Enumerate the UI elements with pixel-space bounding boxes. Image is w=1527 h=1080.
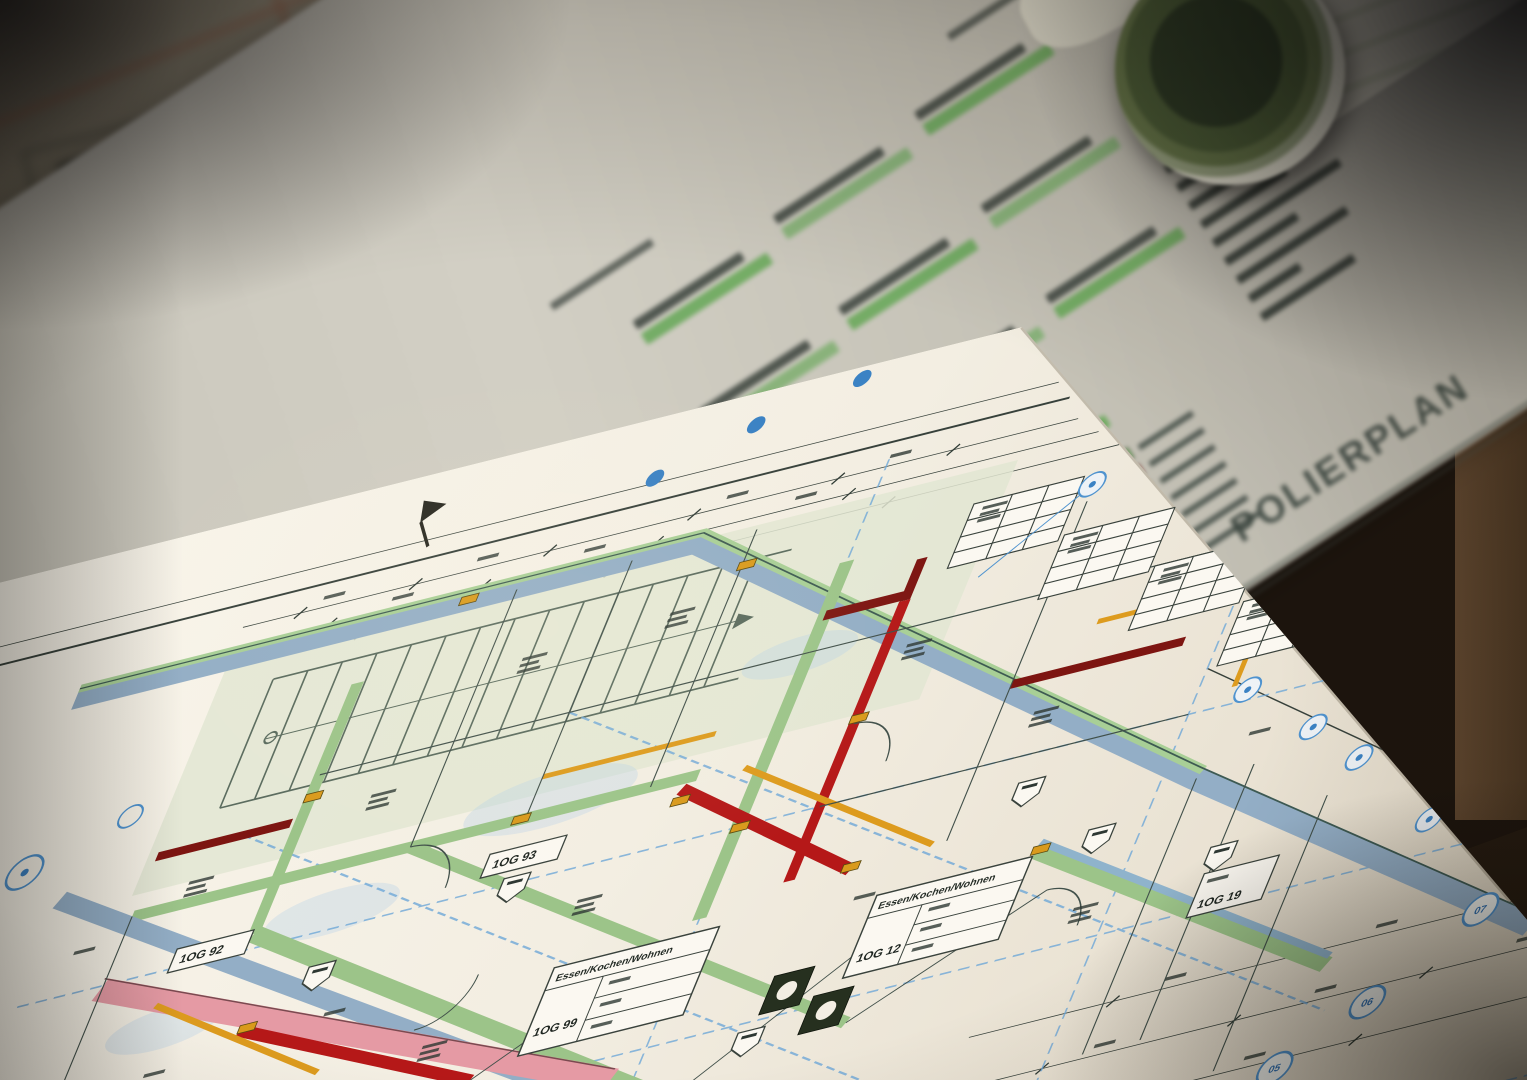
vignette-shadow (0, 0, 1527, 1080)
photo-scene: POLIERPLANUNG 02b (0, 0, 1527, 1080)
